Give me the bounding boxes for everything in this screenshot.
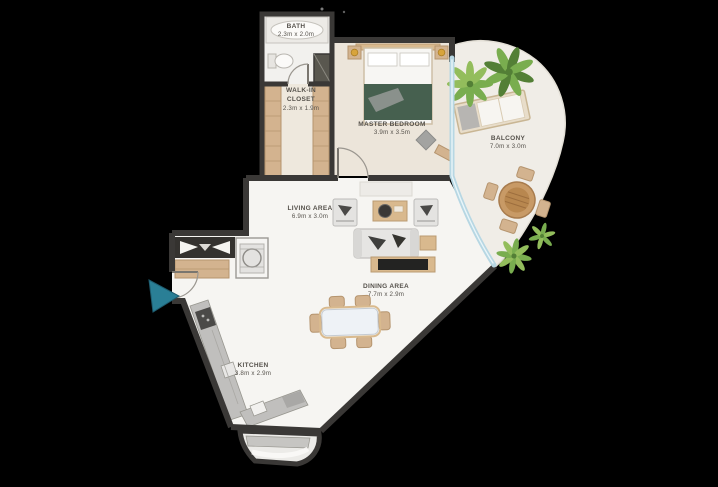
room-name: LIVING AREA bbox=[288, 204, 333, 213]
room-label-balcony: BALCONY 7.0m x 3.0m bbox=[490, 134, 526, 152]
coffee-table bbox=[373, 201, 407, 221]
shower bbox=[314, 54, 330, 82]
room-name: BALCONY bbox=[490, 134, 526, 143]
washing-machine bbox=[236, 238, 268, 278]
room-label-master-bedroom: MASTER BEDROOM 3.9m x 3.5m bbox=[358, 120, 425, 138]
nightstand-left bbox=[348, 46, 361, 59]
room-dims: 2.3m x 1.9m bbox=[274, 105, 328, 114]
utility-appendix bbox=[240, 431, 319, 464]
room-dims: 7.7m x 2.9m bbox=[363, 291, 409, 300]
toilet bbox=[268, 54, 293, 68]
side-table bbox=[420, 236, 436, 250]
floor-plan-page: BATH 2.3m x 2.0m WALK-IN CLOSET 2.3m x 1… bbox=[0, 0, 718, 487]
entry-wardrobe bbox=[175, 237, 235, 258]
sideboard bbox=[360, 182, 412, 196]
floor-plan-canvas bbox=[0, 0, 718, 487]
bed bbox=[356, 44, 440, 124]
room-name: WALK-IN CLOSET bbox=[274, 86, 328, 105]
room-name: BATH bbox=[278, 22, 314, 31]
speck bbox=[321, 8, 324, 11]
room-dims: 2.3m x 2.0m bbox=[278, 31, 314, 40]
potted-plant bbox=[525, 220, 558, 252]
room-label-living-area: LIVING AREA 6.9m x 3.0m bbox=[288, 204, 333, 222]
room-label-walk-in-closet: WALK-IN CLOSET 2.3m x 1.9m bbox=[274, 86, 328, 114]
room-dims: 7.0m x 3.0m bbox=[490, 143, 526, 152]
armchair-right bbox=[414, 199, 438, 226]
room-dims: 6.9m x 3.0m bbox=[288, 213, 333, 222]
nightstand-right bbox=[435, 46, 448, 59]
room-label-kitchen: KITCHEN 3.8m x 2.9m bbox=[235, 361, 271, 379]
sofa bbox=[354, 229, 418, 258]
room-name: MASTER BEDROOM bbox=[358, 120, 425, 129]
room-label-dining-area: DINING AREA 7.7m x 2.9m bbox=[363, 282, 409, 300]
room-dims: 3.8m x 2.9m bbox=[235, 370, 271, 379]
room-label-bath: BATH 2.3m x 2.0m bbox=[278, 22, 314, 40]
armchair-left bbox=[333, 199, 357, 226]
room-name: KITCHEN bbox=[235, 361, 271, 370]
room-name: DINING AREA bbox=[363, 282, 409, 291]
room-dims: 3.9m x 3.5m bbox=[358, 129, 425, 138]
speck bbox=[343, 11, 345, 13]
tv-console bbox=[371, 257, 435, 272]
entry-dresser bbox=[175, 260, 229, 278]
